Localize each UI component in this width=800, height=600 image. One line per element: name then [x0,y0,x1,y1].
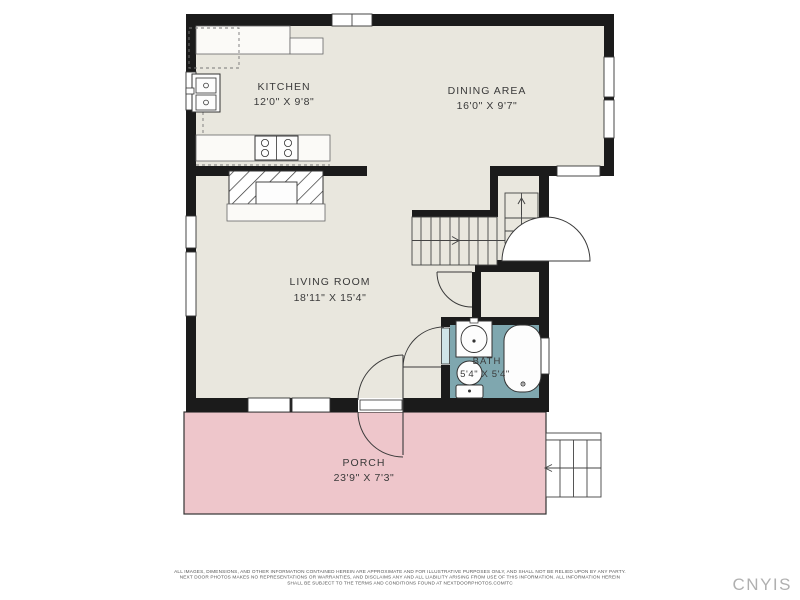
wall-hall-vertical [490,166,498,217]
watermark-cnyis: CNYIS [733,575,792,594]
floor-plan-svg: KITCHEN 12'0" X 9'8" DINING AREA 16'0" X… [0,0,800,600]
fireplace [227,171,325,221]
window-living-left-lower [186,252,196,316]
footer: ALL IMAGES, DIMENSIONS, AND OTHER INFORM… [174,569,792,594]
kitchen-dims: 12'0" X 9'8" [254,96,315,108]
sink-faucet [186,88,194,94]
bath-label: BATH [473,356,502,367]
porch-label: PORCH [343,457,386,469]
window-living-bottom-right [292,398,330,412]
window-kitchen-top [332,14,372,26]
disclaimer-line-3: SHALL BE SUBJECT TO THE TERMS AND CONDIT… [287,580,513,585]
living-dims: 18'11" X 15'4" [294,292,367,304]
porch-dims: 23'9" X 7'3" [334,472,395,484]
floor-plan-page: KITCHEN 12'0" X 9'8" DINING AREA 16'0" X… [0,0,800,600]
kitchen-label: KITCHEN [257,81,310,93]
firebox [256,182,297,204]
porch-steps [545,433,601,497]
window-living-bottom-left [248,398,290,412]
disclaimer-line-1: ALL IMAGES, DIMENSIONS, AND OTHER INFORM… [174,569,626,574]
wall-top [186,14,614,26]
bathtub [504,325,541,392]
wall-closet-left [472,272,481,317]
window-dining-right-lower [604,100,614,138]
window-dining-bottom [557,166,600,176]
bath-sink [456,318,492,357]
disclaimer-line-2: NEXT DOOR PHOTOS MAKES NO REPRESENTATION… [180,575,620,580]
kitchen-appliance [290,38,323,54]
dining-dims: 16'0" X 9'7" [457,100,518,112]
window-dining-right-upper [604,57,614,97]
living-label: LIVING ROOM [289,276,370,288]
wall-stair-top [412,210,498,217]
window-living-left-upper [186,216,196,248]
bath-dims: 5'4" X 5'4" [460,369,510,380]
dining-label: DINING AREA [448,85,527,97]
range-stove [255,136,298,160]
kitchen-counter-top [196,26,290,54]
hearth [227,204,325,221]
